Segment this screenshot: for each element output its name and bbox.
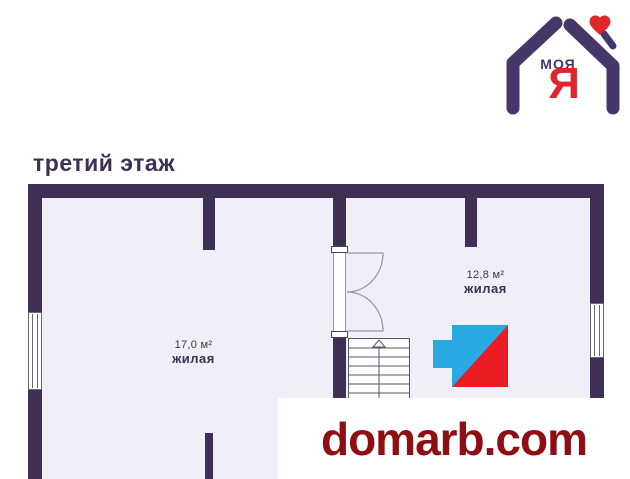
wall-left-upper xyxy=(28,184,42,312)
agency-logo: МОЯ Я xyxy=(500,10,625,115)
room-label-left: 17,0 м² жилая xyxy=(131,339,256,366)
watermark-site: domarb.com xyxy=(321,412,587,466)
watermark-box: domarb.com xyxy=(278,398,630,479)
brand-letter: Я xyxy=(500,62,628,106)
partition-left-room xyxy=(203,198,215,250)
partition-bottom-left xyxy=(205,433,213,479)
stair-steps-icon xyxy=(349,339,409,399)
room-label-right: 12,8 м² жилая xyxy=(423,269,548,296)
room-type: жилая xyxy=(131,351,256,366)
heart-icon xyxy=(590,16,611,36)
window-glass xyxy=(594,305,600,356)
window-right xyxy=(590,303,604,358)
partition-right-room xyxy=(465,198,477,247)
wall-left-lower xyxy=(28,390,42,479)
wall-right-upper xyxy=(590,184,604,303)
partition-hall-upper xyxy=(333,198,346,247)
floorplan-image: МОЯ Я третий этаж xyxy=(0,0,630,479)
door-swing-icon xyxy=(331,246,423,338)
room-type: жилая xyxy=(423,281,548,296)
window-glass xyxy=(32,314,38,388)
stair-direction-arrow xyxy=(373,340,385,347)
window-left xyxy=(28,312,42,390)
thumb-stroke xyxy=(604,34,613,46)
room-area: 12,8 м² xyxy=(423,269,548,281)
floor-title: третий этаж xyxy=(33,150,175,177)
agency-mark-icon xyxy=(433,325,508,387)
room-area: 17,0 м² xyxy=(131,339,256,351)
wall-top xyxy=(28,184,604,198)
